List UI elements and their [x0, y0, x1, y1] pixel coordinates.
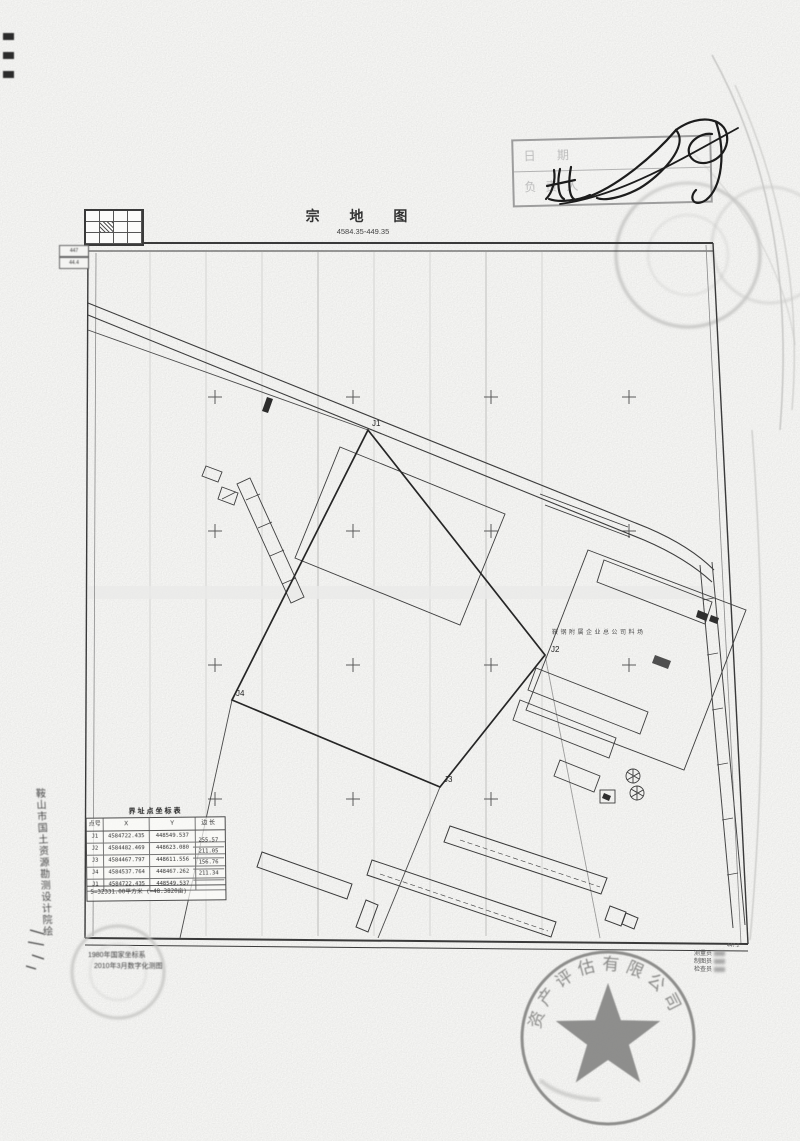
cell-x: 4584722.435 [104, 831, 150, 842]
cell-point: J1 [87, 832, 104, 843]
handwritten-signature [490, 95, 770, 225]
legend-cell [100, 233, 114, 244]
point-label-j1: J1 [372, 419, 381, 428]
cell-x: 4584482.469 [104, 843, 150, 854]
edge-mark [3, 52, 14, 59]
legend-cell [86, 211, 100, 222]
illegible-name [714, 951, 725, 956]
margin-number: 44.4 [59, 257, 89, 269]
coordinate-system-note: 1980年国家坐标系 [88, 950, 146, 960]
cell-x: 4584537.764 [104, 867, 150, 878]
cell-point: J3 [87, 856, 104, 867]
legend-cell [86, 222, 100, 233]
point-label-j3: J3 [444, 775, 453, 784]
survey-date-note: 2010年3月数字化测图 [94, 961, 162, 971]
staff-label: 测量员 [694, 951, 712, 957]
illegible-name [714, 959, 725, 964]
table-grid: 点号 X Y J1 4584722.435 448549.537 J2 4584… [86, 816, 227, 901]
cell-x: 4584467.797 [104, 855, 150, 866]
staff-row: 制图员 [694, 958, 725, 966]
legend-cell [86, 233, 100, 244]
cell-y: 448611.556 [150, 855, 196, 866]
sheet-number: 4584.35-449.35 [288, 227, 438, 236]
legend-cell [114, 233, 128, 244]
staff-label: 检查员 [694, 967, 712, 973]
site-label: 鞍钢附属企业总公司料场 [552, 628, 646, 636]
cell-y: 448467.262 [150, 867, 196, 878]
edge-mark [3, 71, 14, 78]
margin-number: 447 [59, 245, 89, 257]
page-edge-marks [3, 33, 21, 90]
staff-row: 检查员 [694, 966, 725, 974]
col-header-edge-length: 边 长 [193, 817, 224, 830]
boundary-point-coordinate-table: 界址点坐标表 点号 X Y J1 4584722.435 448549.537 … [86, 805, 227, 901]
scan-band [88, 586, 713, 599]
illegible-name [714, 967, 725, 972]
point-label-j4: J4 [236, 689, 245, 698]
legend-cell [128, 211, 142, 222]
margin-coordinate-cells: 447 44.4 [59, 245, 89, 269]
area-summary: S=32331.00平方米 (=48.3820亩) [87, 884, 225, 899]
cell-y: 448549.537 [150, 831, 196, 842]
col-header-x: X [104, 818, 150, 830]
legend-cell [114, 211, 128, 222]
staff-label: 制图员 [694, 959, 712, 965]
col-header-point: 点号 [87, 819, 104, 831]
cell-point: J4 [87, 868, 104, 879]
point-label-j2: J2 [551, 645, 560, 654]
cell-y: 448623.080 [150, 843, 196, 854]
scanned-cadastral-map-page: J1 J2 J3 J4 鞍钢附属企业总公司料场 资产评估有限公司 [0, 0, 800, 1141]
col-header-y: Y [150, 818, 196, 830]
cell-point: J2 [87, 844, 104, 855]
frame-corner-number: 447.2 [727, 943, 740, 949]
sheet-title: 宗 地 图 [288, 206, 438, 226]
drafting-staff-block: 测量员 制图员 检查员 [694, 950, 725, 974]
staff-row: 测量员 [694, 950, 725, 958]
legend-cell [128, 222, 142, 233]
legend-cell [114, 222, 128, 233]
legend-grid-symbol [84, 209, 144, 246]
legend-cell [128, 233, 142, 244]
edge-length-value: 211.34 [193, 868, 224, 880]
edge-mark [3, 33, 14, 40]
legend-cell-hatched [100, 222, 114, 233]
legend-cell [100, 211, 114, 222]
